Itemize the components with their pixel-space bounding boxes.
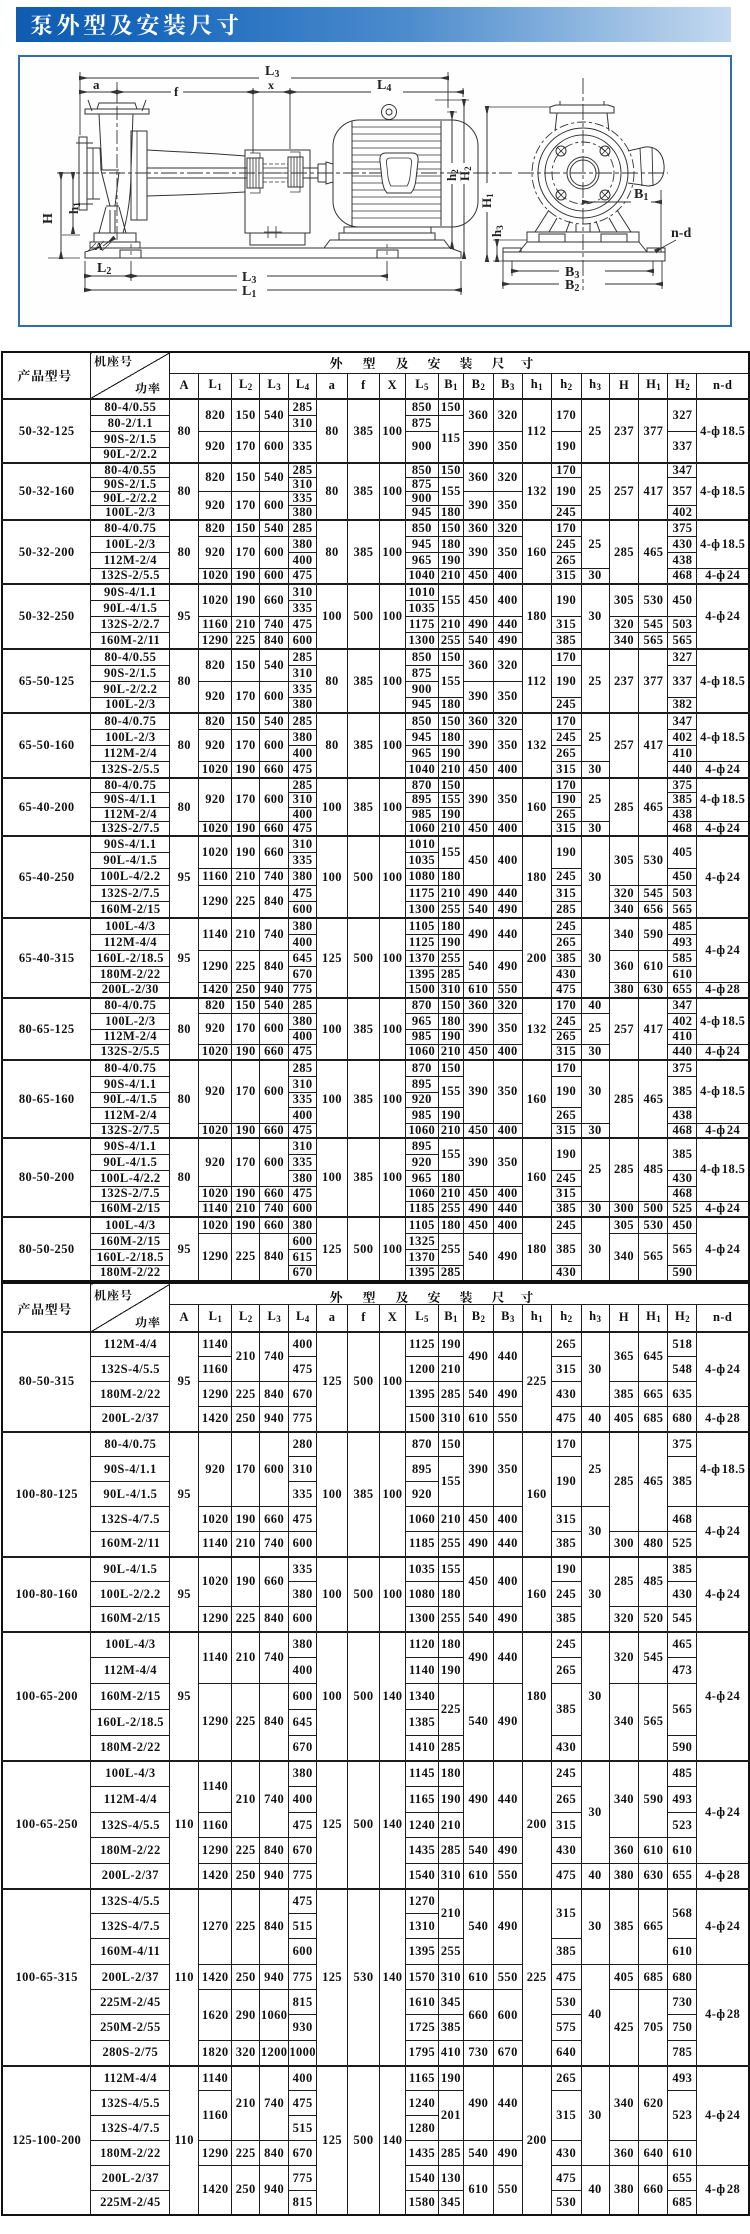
svg-text:B1: B1 (634, 187, 648, 203)
svg-text:f: f (174, 84, 179, 99)
svg-text:h1: h1 (66, 202, 82, 214)
svg-text:x: x (268, 78, 274, 92)
svg-text:A: A (95, 241, 103, 253)
svg-text:n-d: n-d (671, 226, 691, 241)
svg-text:a: a (93, 77, 100, 92)
svg-text:H: H (41, 213, 56, 224)
svg-text:H1: H1 (479, 193, 495, 208)
svg-text:L4: L4 (377, 78, 391, 94)
svg-text:H2: H2 (457, 166, 473, 181)
svg-text:h3: h3 (489, 225, 505, 237)
svg-text:L2: L2 (97, 261, 111, 277)
svg-text:L1: L1 (242, 284, 256, 300)
